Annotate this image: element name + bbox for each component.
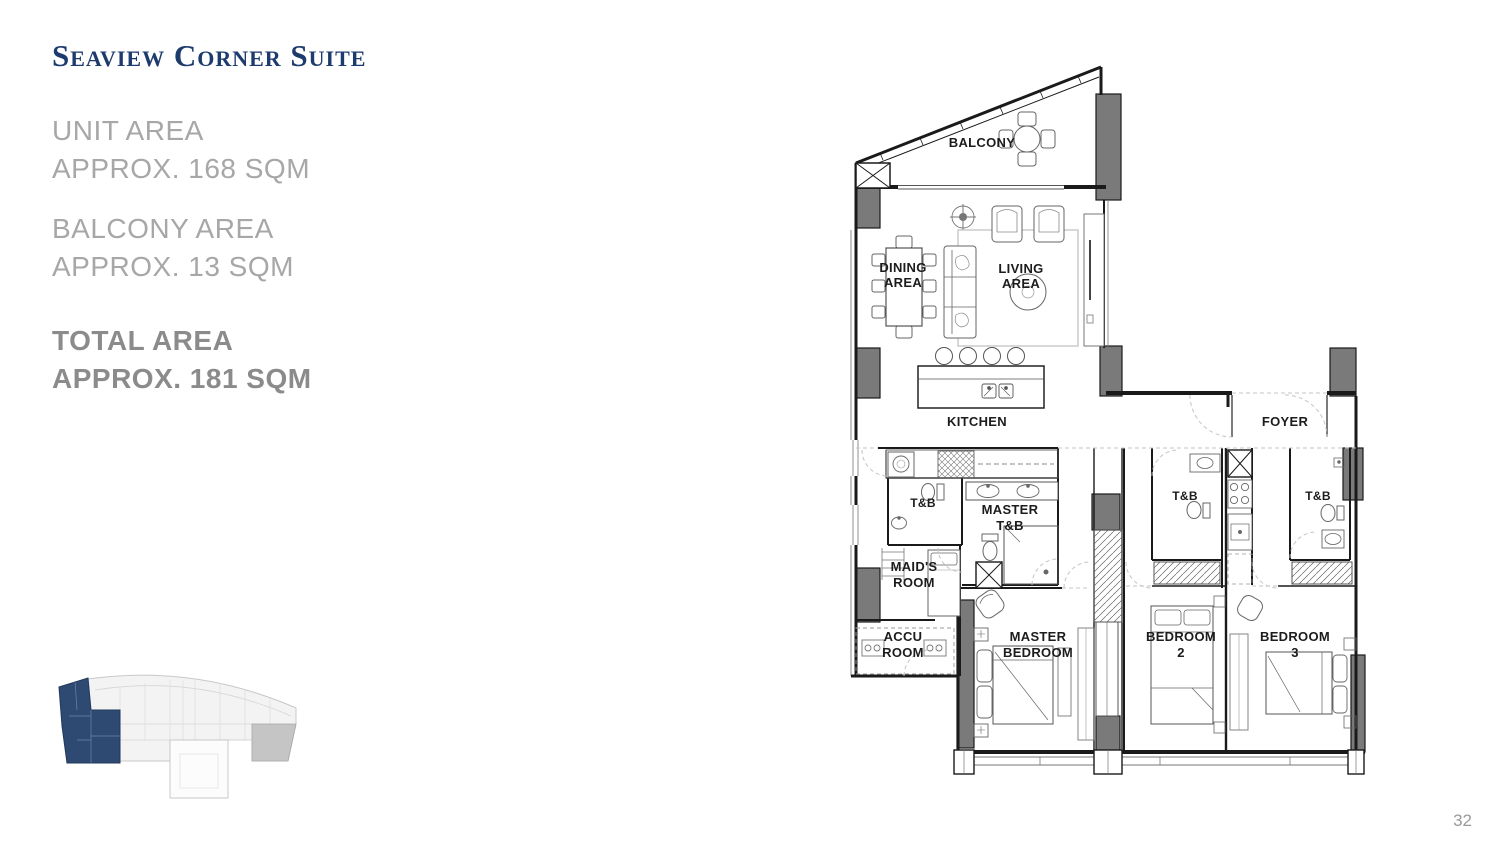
room-label-living-1: LIVING [998,261,1043,276]
sink-icon [1190,454,1220,472]
page-title: Seaview Corner Suite [52,38,366,74]
sofa-icon [944,246,976,338]
shaft-icon [976,562,1002,588]
door-swing-icon [862,450,888,476]
total-area-label: TOTAL AREA [52,322,312,360]
room-label-master-bedroom-2: BEDROOM [1003,645,1073,660]
wardrobe-icon [1230,634,1248,730]
side-table-icon [1214,596,1225,607]
room-label-balcony: BALCONY [949,135,1015,150]
armchair-icon [1235,593,1265,623]
room-label-master-tb-1: MASTER [982,502,1039,517]
armchair-icon [1034,206,1064,242]
room-label-bedroom2-2: 2 [1177,645,1185,660]
side-table-icon [1344,638,1356,650]
wardrobe-icon [1078,628,1094,740]
balcony-sliding-door [898,184,1064,190]
room-label-bedroom2-1: BEDROOM [1146,629,1216,644]
column [1092,494,1120,530]
column [1100,346,1122,396]
shaft-icon [1228,450,1252,477]
shaft-icon [856,163,890,188]
total-area-block: TOTAL AREA APPROX. 181 SQM [52,322,312,398]
page-number: 32 [1453,811,1472,831]
armchair-icon [992,206,1022,242]
wardrobe-icon [1154,562,1220,584]
keyplan [55,666,307,800]
column [1351,655,1365,752]
wardrobe-icon [1292,562,1352,584]
balcony-railing [856,67,1101,189]
sliding-closet-icon [1096,622,1118,716]
room-label-maids-room-2: ROOM [893,575,935,590]
bed-icon [1266,652,1347,714]
room-label-maids-tb: T&B [910,496,936,510]
ceiling-fan-icon [950,204,976,230]
sink-icon [1322,530,1344,548]
column [1096,716,1120,752]
utility-dashed-area [1228,554,1252,584]
room-label-bedroom3-2: 3 [1291,645,1299,660]
balcony-area-value: APPROX. 13 SQM [52,248,294,286]
door-swing-icon [1290,532,1316,558]
sink-icon [892,517,907,529]
keyplan-adjacent-unit [252,724,296,761]
balcony-area-block: BALCONY AREA APPROX. 13 SQM [52,210,294,286]
stove-icon [1228,480,1252,508]
washer-icon [888,452,914,477]
room-label-living-2: AREA [1002,276,1040,291]
column [1343,448,1363,500]
keyplan-core [170,740,228,798]
room-label-maids-room-1: MAID'S [891,559,938,574]
room-label-accu-2: ROOM [882,645,924,660]
armchair-icon [973,587,1006,620]
shower-icon [1004,526,1058,584]
toilet-icon [1321,505,1344,522]
unit-area-block: UNIT AREA APPROX. 168 SQM [52,112,310,188]
toilet-icon [1187,502,1210,519]
door-swing-icon [1252,562,1278,588]
sink-icon [1228,514,1252,550]
room-label-accu-1: ACCU [884,629,923,644]
total-area-value: APPROX. 181 SQM [52,360,312,398]
bed-icon [1151,606,1213,724]
room-label-bedroom2-tb: T&B [1172,489,1198,503]
column [856,568,880,622]
unit-area-value: APPROX. 168 SQM [52,150,310,188]
side-table-icon [1214,722,1225,733]
room-label-kitchen: KITCHEN [947,414,1007,429]
laundry-counter [886,450,1058,478]
floor-plan: BALCONY DINING AREA LIVING AREA KITCHEN … [840,55,1385,800]
room-label-bedroom3-tb: T&B [1305,489,1331,503]
linen-closet-icon [1094,530,1122,622]
door-swing-icon [1152,450,1178,476]
column [1330,348,1356,396]
brochure-page: Seaview Corner Suite UNIT AREA APPROX. 1… [0,0,1500,843]
door-swing-icon [1126,562,1152,588]
toilet-icon [982,534,998,561]
door-swing-icon [1190,395,1232,437]
tv-console-icon [1084,214,1104,346]
room-label-foyer: FOYER [1262,414,1309,429]
room-label-dining-1: DINING [879,260,926,275]
room-label-dining-2: AREA [884,275,922,290]
door-swing-icon [1064,562,1090,588]
room-label-master-tb-2: T&B [996,518,1024,533]
balcony-area-label: BALCONY AREA [52,210,294,248]
room-label-master-bedroom-1: MASTER [1010,629,1067,644]
kitchen-island-icon [918,348,1044,409]
column [856,348,880,398]
unit-area-label: UNIT AREA [52,112,310,150]
room-label-bedroom3-1: BEDROOM [1260,629,1330,644]
column [1096,94,1121,200]
vanity-icon [966,482,1058,500]
